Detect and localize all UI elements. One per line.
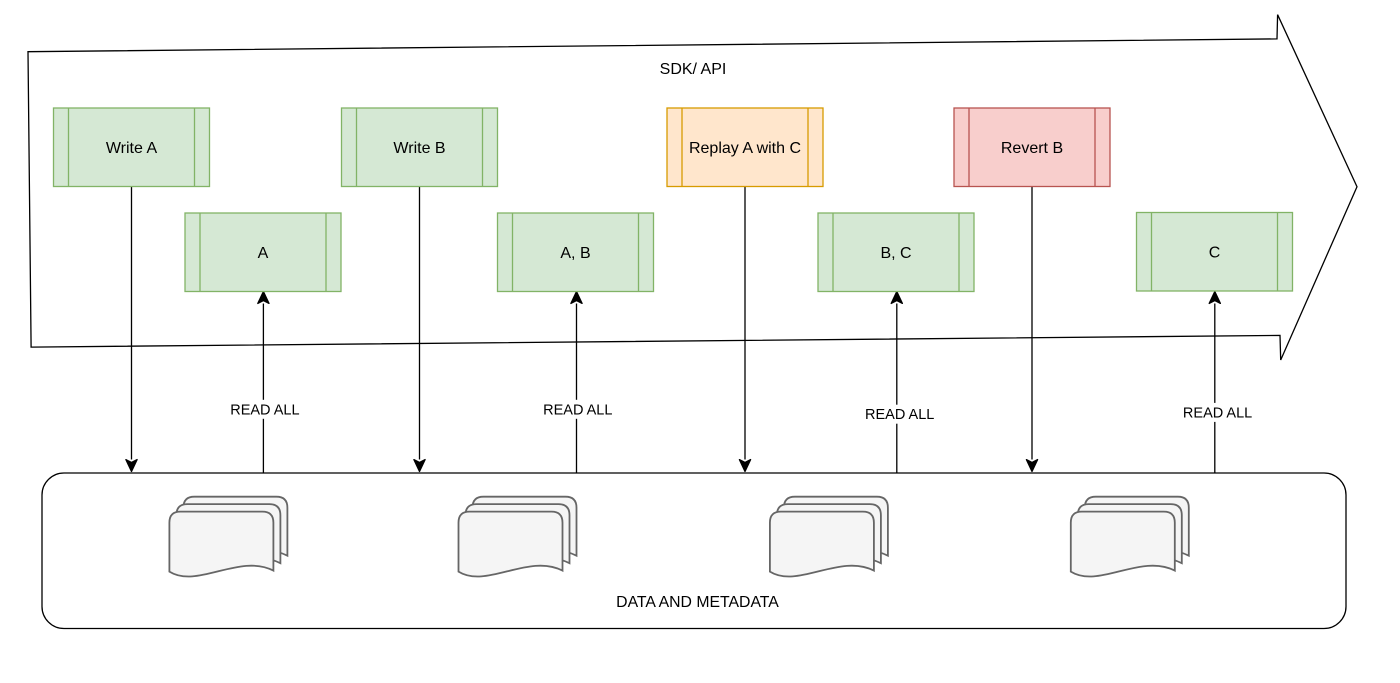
svg-text:SDK/ API: SDK/ API [660, 61, 727, 78]
svg-text:A, B: A, B [560, 245, 590, 262]
svg-text:A: A [258, 245, 269, 262]
svg-text:Replay A with C: Replay A with C [689, 140, 801, 157]
svg-text:DATA AND METADATA: DATA AND METADATA [616, 594, 779, 611]
svg-text:C: C [1209, 244, 1221, 261]
svg-text:READ ALL: READ ALL [230, 402, 299, 418]
svg-text:READ ALL: READ ALL [1183, 405, 1252, 421]
svg-text:Revert B: Revert B [1001, 140, 1063, 157]
svg-text:READ ALL: READ ALL [865, 407, 934, 423]
svg-text:Write B: Write B [393, 140, 445, 157]
svg-text:Write A: Write A [106, 140, 158, 157]
svg-text:B, C: B, C [880, 245, 911, 262]
svg-text:READ ALL: READ ALL [543, 402, 612, 418]
